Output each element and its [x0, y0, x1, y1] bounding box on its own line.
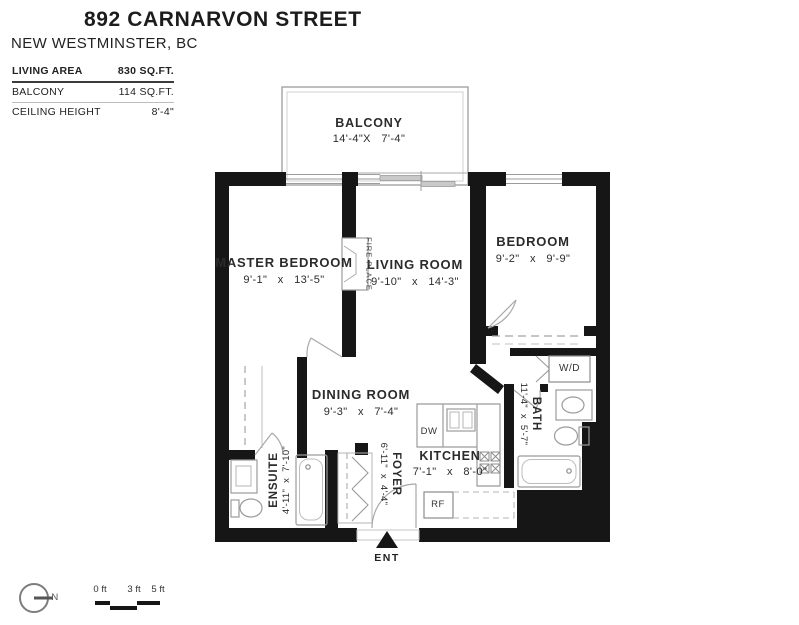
scale-tick-0: 0 ft	[85, 584, 115, 595]
entry-label: ENT	[369, 552, 405, 564]
stat-value: 114 SQ.FT.	[119, 86, 174, 98]
stat-value: 8'-4"	[152, 106, 174, 118]
stat-value: 830 SQ.FT.	[118, 65, 174, 77]
room-label-dining-room: DINING ROOM 9'-3" x 7'-4"	[281, 388, 441, 419]
room-label-bedroom: BEDROOM 9'-2" x 9'-9"	[453, 235, 613, 266]
scale-bar	[95, 601, 160, 610]
stat-label: BALCONY	[12, 86, 64, 98]
page-title: 892 CARNARVON STREET	[84, 8, 362, 32]
ensuite-sink	[231, 460, 257, 493]
room-label-bath: BATH 11'-4" x 5'-7"	[517, 359, 543, 469]
refrigerator-label: RF	[426, 499, 450, 510]
room-label-ensuite: ENSUITE 4'-11" x 7'-10"	[267, 415, 293, 545]
fireplace-label: FIRE PLACE	[365, 237, 374, 291]
washer-dryer-label: W/D	[549, 363, 590, 374]
master-bedroom-door	[307, 338, 342, 357]
stat-row-ceiling-height: CEILING HEIGHT 8'-4"	[12, 103, 174, 122]
floor-plan-page: 892 CARNARVON STREET NEW WESTMINSTER, BC…	[0, 0, 799, 625]
page-subtitle: NEW WESTMINSTER, BC	[11, 35, 198, 52]
foyer-closet	[338, 453, 372, 523]
room-label-foyer: FOYER 6'-11" x 4'-4"	[377, 419, 403, 529]
room-label-balcony: BALCONY 14'-4"X 7'-4"	[289, 116, 449, 146]
bath-toilet	[555, 427, 578, 445]
stat-label: CEILING HEIGHT	[12, 106, 101, 118]
dishwasher-label: DW	[417, 426, 441, 437]
stat-row-balcony: BALCONY 114 SQ.FT.	[12, 83, 174, 103]
north-label: N	[49, 592, 61, 603]
stat-row-living-area: LIVING AREA 830 SQ.FT.	[12, 62, 174, 83]
foyer-closet-bifold-doors	[352, 457, 368, 521]
stat-label: LIVING AREA	[12, 65, 83, 77]
bedroom-door	[488, 300, 516, 328]
scale-tick-5: 5 ft	[143, 584, 173, 595]
stats-table: LIVING AREA 830 SQ.FT. BALCONY 114 SQ.FT…	[12, 62, 174, 122]
ensuite-toilet	[240, 499, 262, 517]
